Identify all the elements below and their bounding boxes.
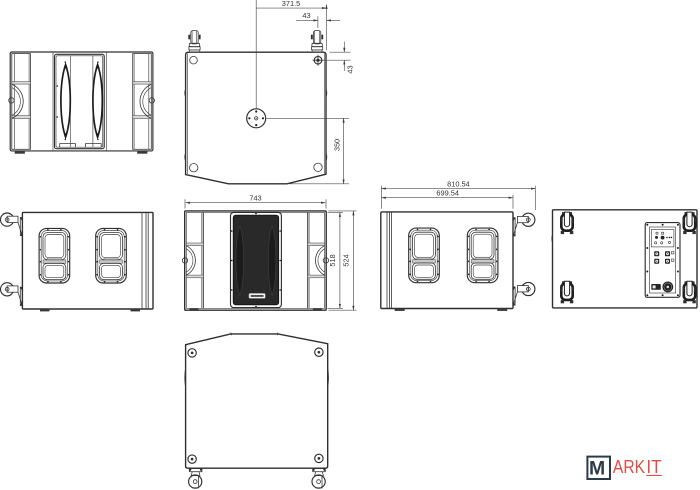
svg-text:371.5: 371.5 bbox=[282, 0, 301, 8]
svg-text:699.54: 699.54 bbox=[436, 189, 459, 198]
svg-text:43: 43 bbox=[346, 65, 355, 73]
svg-text:518: 518 bbox=[328, 254, 337, 266]
svg-text:ARK: ARK bbox=[613, 456, 646, 477]
svg-text:43: 43 bbox=[302, 11, 310, 20]
svg-text:524: 524 bbox=[341, 254, 350, 266]
svg-text:810.54: 810.54 bbox=[447, 179, 470, 188]
svg-text:M: M bbox=[589, 458, 605, 480]
svg-text:350: 350 bbox=[333, 139, 342, 151]
svg-text:IT: IT bbox=[646, 456, 661, 477]
svg-text:743: 743 bbox=[249, 194, 261, 203]
